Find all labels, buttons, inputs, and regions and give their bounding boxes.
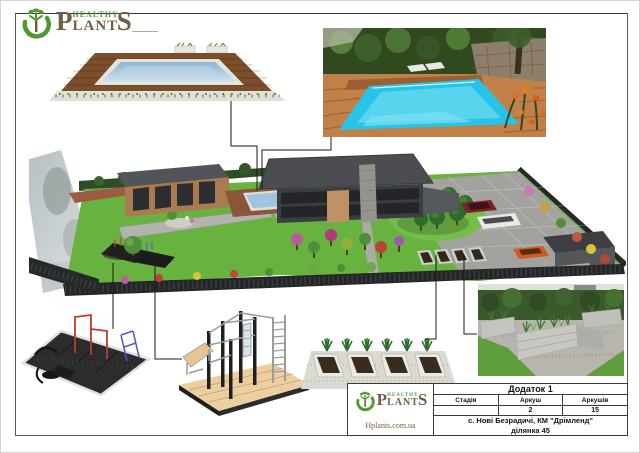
website-text: Hplants.com.ua xyxy=(365,421,415,430)
col-header-stage: Стадія xyxy=(434,395,499,405)
sheet-number: 2 xyxy=(499,406,564,415)
workout-area-render-image xyxy=(17,309,167,409)
project-location: с. Нові Безрадичі, КМ "Дрімленд" ділянка… xyxy=(434,416,627,435)
plant-row xyxy=(322,338,432,351)
logo-word-lant: LANT xyxy=(73,19,119,34)
rubber-mat xyxy=(23,331,149,395)
location-line-2: ділянка 45 xyxy=(511,426,550,435)
deck-planters xyxy=(175,43,227,53)
col-header-sheet: Аркуш xyxy=(499,395,564,405)
tb-logo-letter-p: P xyxy=(377,391,387,408)
logo-underline xyxy=(132,31,158,32)
healthy-plants-logo-icon-small xyxy=(354,391,376,420)
tb-logo-letter-s: S xyxy=(418,391,427,408)
climb-board xyxy=(243,323,251,357)
tb-logo-word-lant: LANT xyxy=(387,398,419,408)
pool-reference-photo xyxy=(323,28,546,137)
site-plan-render-image xyxy=(29,147,626,304)
calisthenics-render-image xyxy=(173,297,313,417)
logo-letter-p: P xyxy=(56,8,73,35)
location-line-1: с. Нові Безрадичі, КМ "Дрімленд" xyxy=(468,416,593,425)
title-block-logo: P HEALTHY LANT S Hplants.com.ua xyxy=(348,384,434,435)
stage-value xyxy=(434,406,499,415)
raised-beds-photo xyxy=(478,284,624,376)
title-block-table: Додаток 1 Стадія Аркуш Аркушів 2 15 с. Н… xyxy=(434,384,627,435)
logo-letter-s: S xyxy=(117,8,132,35)
design-sheet: P HEALTHY LANT S xyxy=(0,0,640,453)
col-header-sheets: Аркушів xyxy=(563,395,627,405)
pool-deck-render-image xyxy=(47,43,305,109)
title-block: P HEALTHY LANT S Hplants.com.ua Додаток … xyxy=(347,383,628,436)
sheets-total: 15 xyxy=(563,406,627,415)
appendix-title: Додаток 1 xyxy=(434,384,627,395)
